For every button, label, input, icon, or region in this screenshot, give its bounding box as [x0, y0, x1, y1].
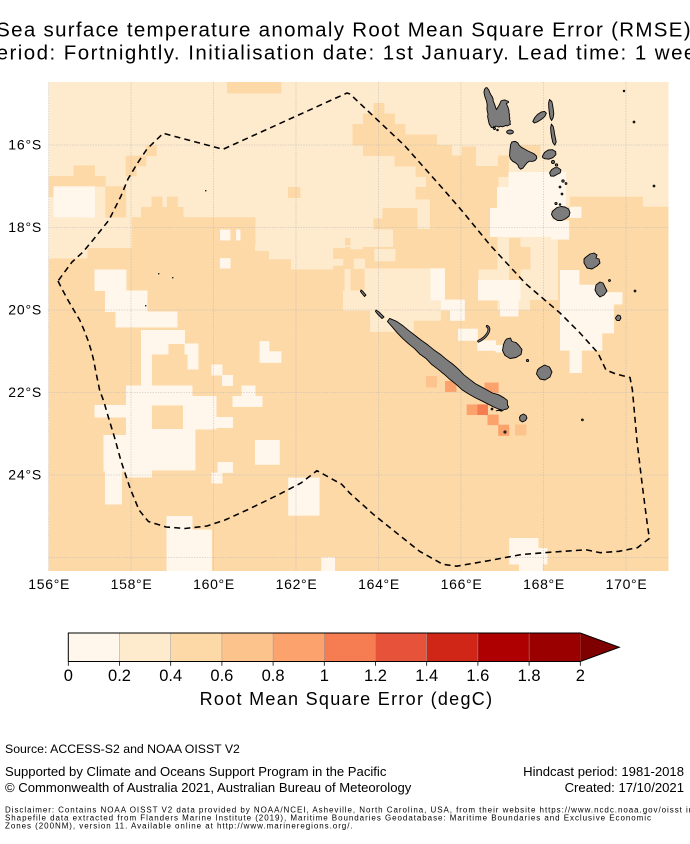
svg-text:1.2: 1.2 — [364, 667, 387, 685]
svg-text:158°E: 158°E — [111, 576, 153, 592]
svg-text:1.8: 1.8 — [518, 667, 541, 685]
svg-text:Period: Fortnightly. Initialis: Period: Fortnightly. Initialisation date… — [0, 42, 690, 65]
svg-text:Root Mean Square Error (degC): Root Mean Square Error (degC) — [200, 689, 494, 709]
svg-text:1: 1 — [320, 667, 329, 685]
svg-text:Source: ACCESS-S2 and NOAA OIS: Source: ACCESS-S2 and NOAA OISST V2 — [5, 742, 240, 756]
svg-text:© Commonwealth of Australia 20: © Commonwealth of Australia 2021, Austra… — [5, 780, 412, 795]
svg-text:170°E: 170°E — [606, 576, 648, 592]
svg-text:156°E: 156°E — [28, 576, 70, 592]
svg-text:0.6: 0.6 — [210, 667, 233, 685]
svg-text:160°E: 160°E — [193, 576, 235, 592]
svg-text:164°E: 164°E — [358, 576, 400, 592]
svg-text:166°E: 166°E — [441, 576, 483, 592]
svg-text:22°S: 22°S — [8, 384, 42, 400]
svg-text:20°S: 20°S — [8, 302, 42, 318]
svg-text:162°E: 162°E — [276, 576, 318, 592]
svg-text:Sea surface temperature anomal: Sea surface temperature anomaly Root Mea… — [0, 19, 690, 42]
svg-text:Hindcast period: 1981-2018: Hindcast period: 1981-2018 — [523, 764, 684, 779]
svg-text:1.6: 1.6 — [466, 667, 489, 685]
svg-text:24°S: 24°S — [8, 467, 42, 483]
svg-text:2: 2 — [576, 667, 585, 685]
svg-text:168°E: 168°E — [523, 576, 565, 592]
svg-text:0.2: 0.2 — [108, 667, 131, 685]
svg-text:Supported by Climate and Ocean: Supported by Climate and Oceans Support … — [5, 764, 387, 779]
svg-text:Created: 17/10/2021: Created: 17/10/2021 — [565, 780, 684, 795]
svg-text:16°S: 16°S — [8, 137, 42, 153]
svg-text:Zones (200NM), version 11. Ava: Zones (200NM), version 11. Available onl… — [5, 822, 354, 831]
svg-text:0: 0 — [64, 667, 73, 685]
svg-text:1.4: 1.4 — [415, 667, 438, 685]
svg-text:0.8: 0.8 — [262, 667, 285, 685]
svg-text:0.4: 0.4 — [159, 667, 182, 685]
svg-text:18°S: 18°S — [8, 219, 42, 235]
